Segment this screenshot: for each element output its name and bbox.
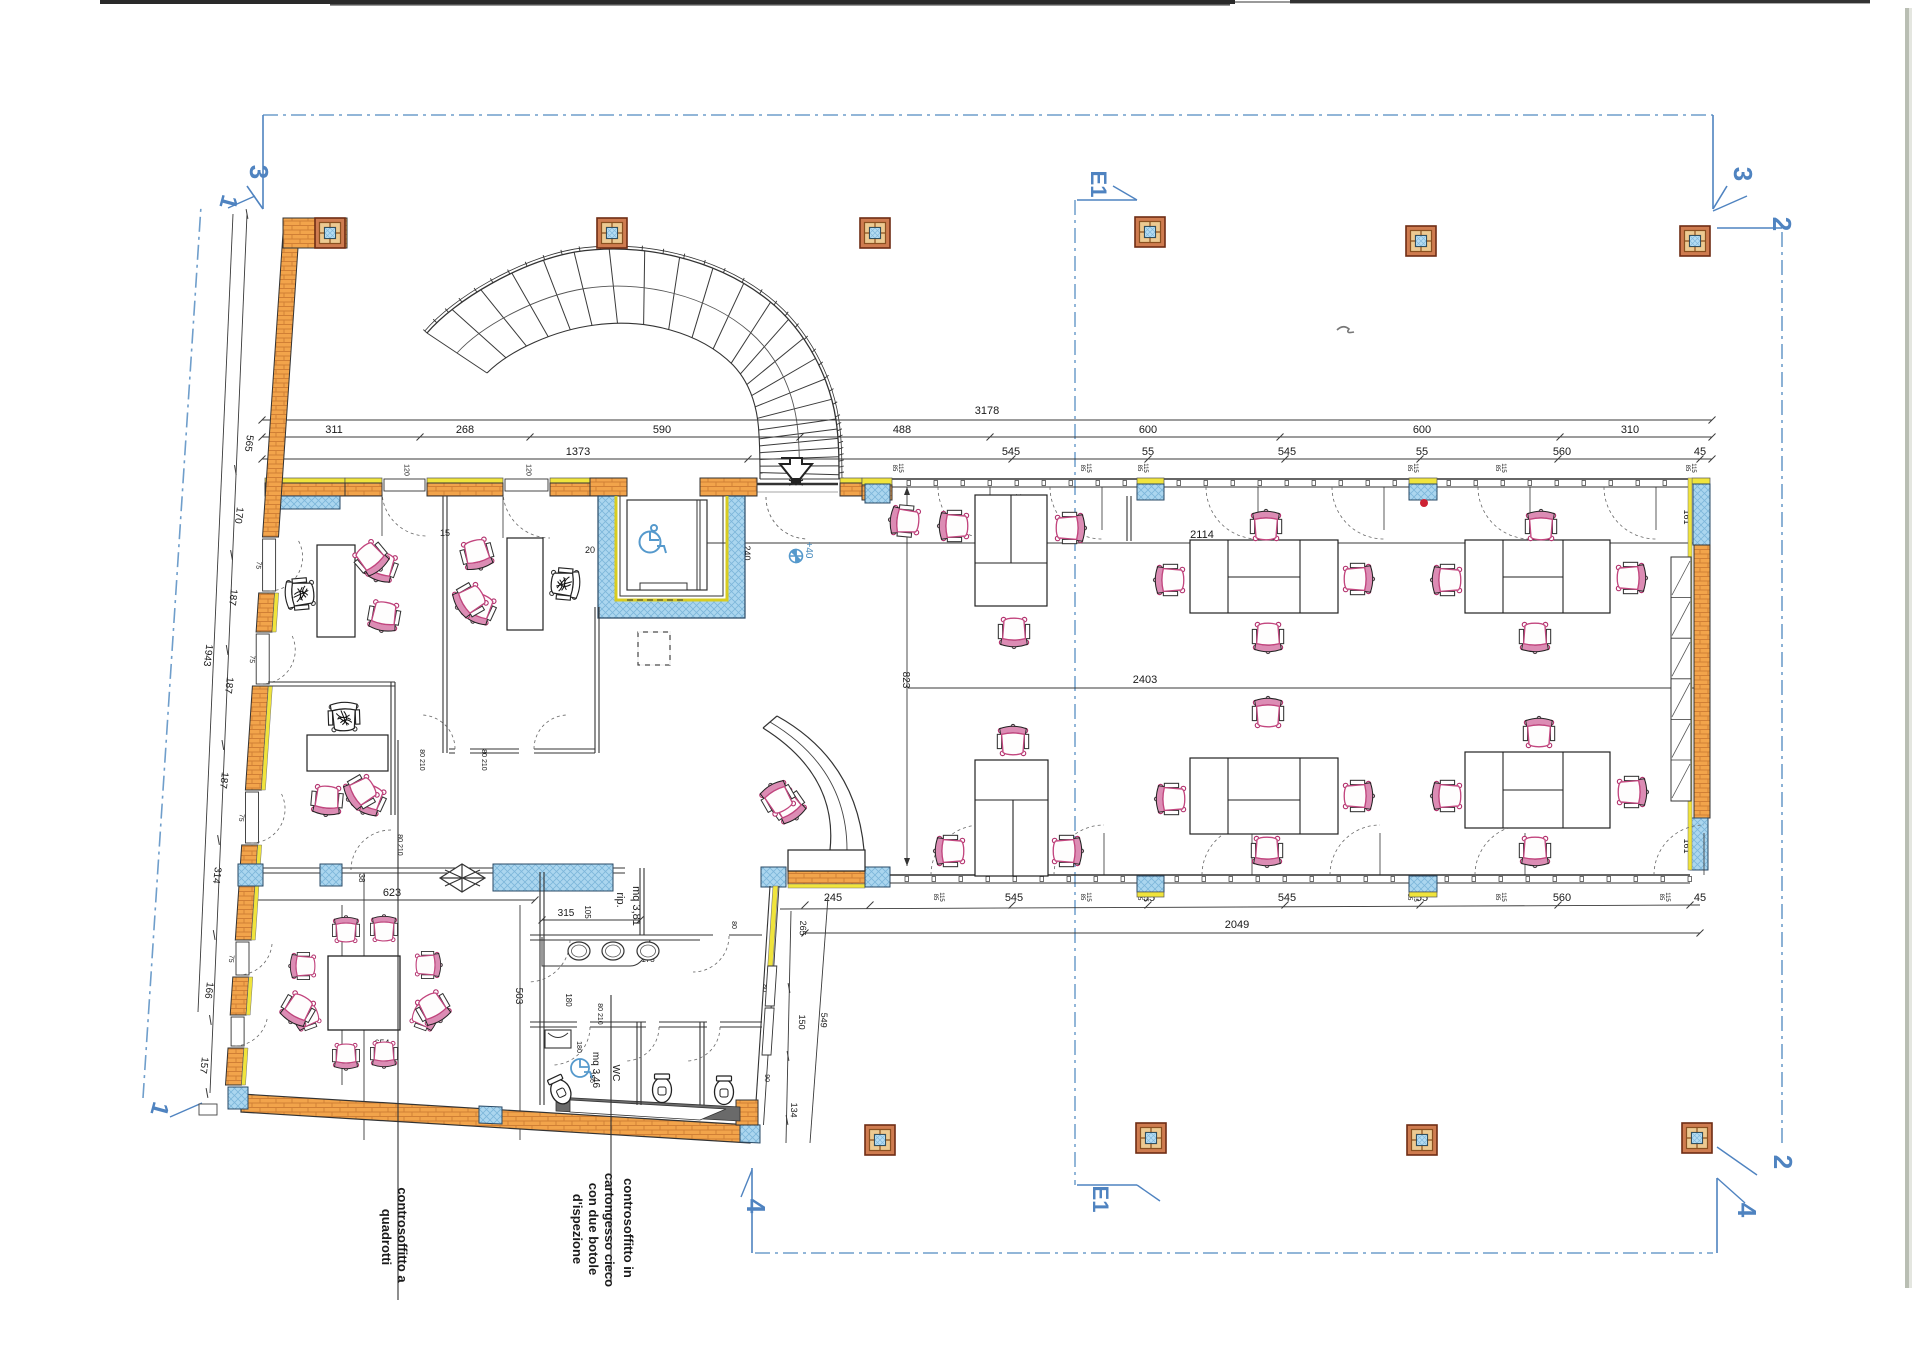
- svg-text:2: 2: [1767, 217, 1797, 231]
- svg-text:115: 115: [1500, 892, 1506, 902]
- svg-text:75: 75: [248, 655, 256, 664]
- svg-text:120: 120: [525, 464, 532, 476]
- svg-text:115: 115: [1664, 892, 1670, 902]
- svg-text:545: 545: [1005, 892, 1023, 904]
- svg-text:2114: 2114: [1190, 529, 1214, 541]
- svg-text:565: 565: [242, 434, 255, 452]
- svg-text:E1: E1: [1088, 1186, 1113, 1213]
- svg-text:85: 85: [1079, 894, 1085, 901]
- svg-text:d'ispezione: d'ispezione: [570, 1194, 585, 1264]
- svg-text:600: 600: [1413, 424, 1431, 436]
- svg-text:268: 268: [456, 424, 474, 436]
- svg-text:545: 545: [1278, 446, 1296, 458]
- svg-text:105: 105: [583, 905, 592, 919]
- svg-text:E1: E1: [1086, 171, 1111, 198]
- svg-text:85: 85: [1494, 894, 1500, 901]
- svg-text:115: 115: [1085, 892, 1091, 902]
- svg-text:75: 75: [254, 561, 262, 570]
- svg-text:590: 590: [653, 424, 671, 436]
- svg-text:115: 115: [1412, 463, 1418, 473]
- svg-text:120: 120: [403, 464, 410, 476]
- svg-text:85: 85: [1658, 894, 1664, 901]
- svg-text:311: 311: [325, 424, 343, 436]
- svg-text:2403: 2403: [1133, 674, 1157, 686]
- svg-text:75: 75: [237, 813, 245, 822]
- svg-text:75: 75: [227, 954, 235, 963]
- svg-text:560: 560: [1553, 446, 1571, 458]
- svg-text:85: 85: [932, 894, 938, 901]
- svg-text:157: 157: [197, 1056, 210, 1074]
- svg-text:166: 166: [202, 981, 215, 999]
- svg-text:503: 503: [513, 988, 524, 1005]
- svg-text:115: 115: [1500, 463, 1506, 473]
- svg-text:45: 45: [1694, 892, 1706, 904]
- svg-text:549: 549: [819, 1012, 830, 1028]
- svg-text:545: 545: [1002, 446, 1020, 458]
- svg-text:55: 55: [1142, 446, 1154, 458]
- svg-text:85: 85: [1406, 465, 1412, 472]
- svg-text:85: 85: [1079, 465, 1085, 472]
- svg-text:80 210: 80 210: [396, 834, 403, 856]
- svg-text:115: 115: [1085, 463, 1091, 473]
- svg-text:2: 2: [1768, 1155, 1798, 1169]
- svg-text:187: 187: [222, 676, 235, 694]
- svg-text:WC: WC: [610, 1065, 621, 1082]
- svg-text:4: 4: [741, 1199, 771, 1214]
- svg-text:rip.: rip.: [614, 892, 626, 907]
- svg-text:controsoffitto in: controsoffitto in: [621, 1178, 636, 1278]
- svg-text:560: 560: [1553, 892, 1571, 904]
- svg-text:1373: 1373: [566, 446, 590, 458]
- svg-text:3: 3: [1728, 167, 1758, 181]
- svg-text:2049: 2049: [1225, 919, 1249, 931]
- svg-text:180: 180: [564, 993, 573, 1007]
- svg-text:115: 115: [1690, 463, 1696, 473]
- svg-text:115: 115: [897, 463, 903, 473]
- svg-text:80: 80: [730, 921, 737, 929]
- svg-text:310: 310: [1621, 424, 1639, 436]
- svg-text:55: 55: [1416, 446, 1428, 458]
- svg-text:115: 115: [938, 892, 944, 902]
- svg-text:187: 187: [217, 771, 230, 789]
- svg-text:170: 170: [232, 506, 245, 524]
- svg-text:+40: +40: [803, 542, 814, 559]
- svg-text:85: 85: [1684, 465, 1690, 472]
- svg-text:150: 150: [797, 1014, 808, 1029]
- svg-text:80 210: 80 210: [418, 749, 425, 771]
- svg-text:con due botole: con due botole: [586, 1183, 601, 1275]
- svg-text:85: 85: [1494, 465, 1500, 472]
- svg-text:38: 38: [357, 874, 366, 883]
- svg-text:quadrotti: quadrotti: [379, 1209, 394, 1265]
- svg-text:85: 85: [891, 465, 897, 472]
- svg-text:600: 600: [1139, 424, 1157, 436]
- svg-text:4: 4: [1732, 1203, 1762, 1218]
- svg-text:245: 245: [824, 892, 842, 904]
- svg-text:3178: 3178: [975, 405, 999, 417]
- svg-text:15: 15: [440, 528, 450, 538]
- svg-text:488: 488: [893, 424, 911, 436]
- svg-text:3: 3: [244, 165, 274, 179]
- svg-text:545: 545: [1278, 892, 1296, 904]
- svg-text:315: 315: [558, 908, 575, 919]
- svg-text:85: 85: [1136, 465, 1142, 472]
- svg-text:314: 314: [210, 866, 223, 884]
- svg-text:115: 115: [1142, 463, 1148, 473]
- svg-text:823: 823: [900, 672, 911, 689]
- svg-text:187: 187: [226, 588, 239, 606]
- svg-text:20: 20: [585, 545, 595, 555]
- svg-text:80 210: 80 210: [480, 749, 487, 771]
- svg-text:cartongesso cieco: cartongesso cieco: [602, 1173, 617, 1287]
- svg-text:265: 265: [798, 920, 809, 935]
- svg-text:134: 134: [789, 1102, 800, 1117]
- svg-text:controsoffitto a: controsoffitto a: [395, 1187, 410, 1283]
- svg-text:45: 45: [1694, 446, 1706, 458]
